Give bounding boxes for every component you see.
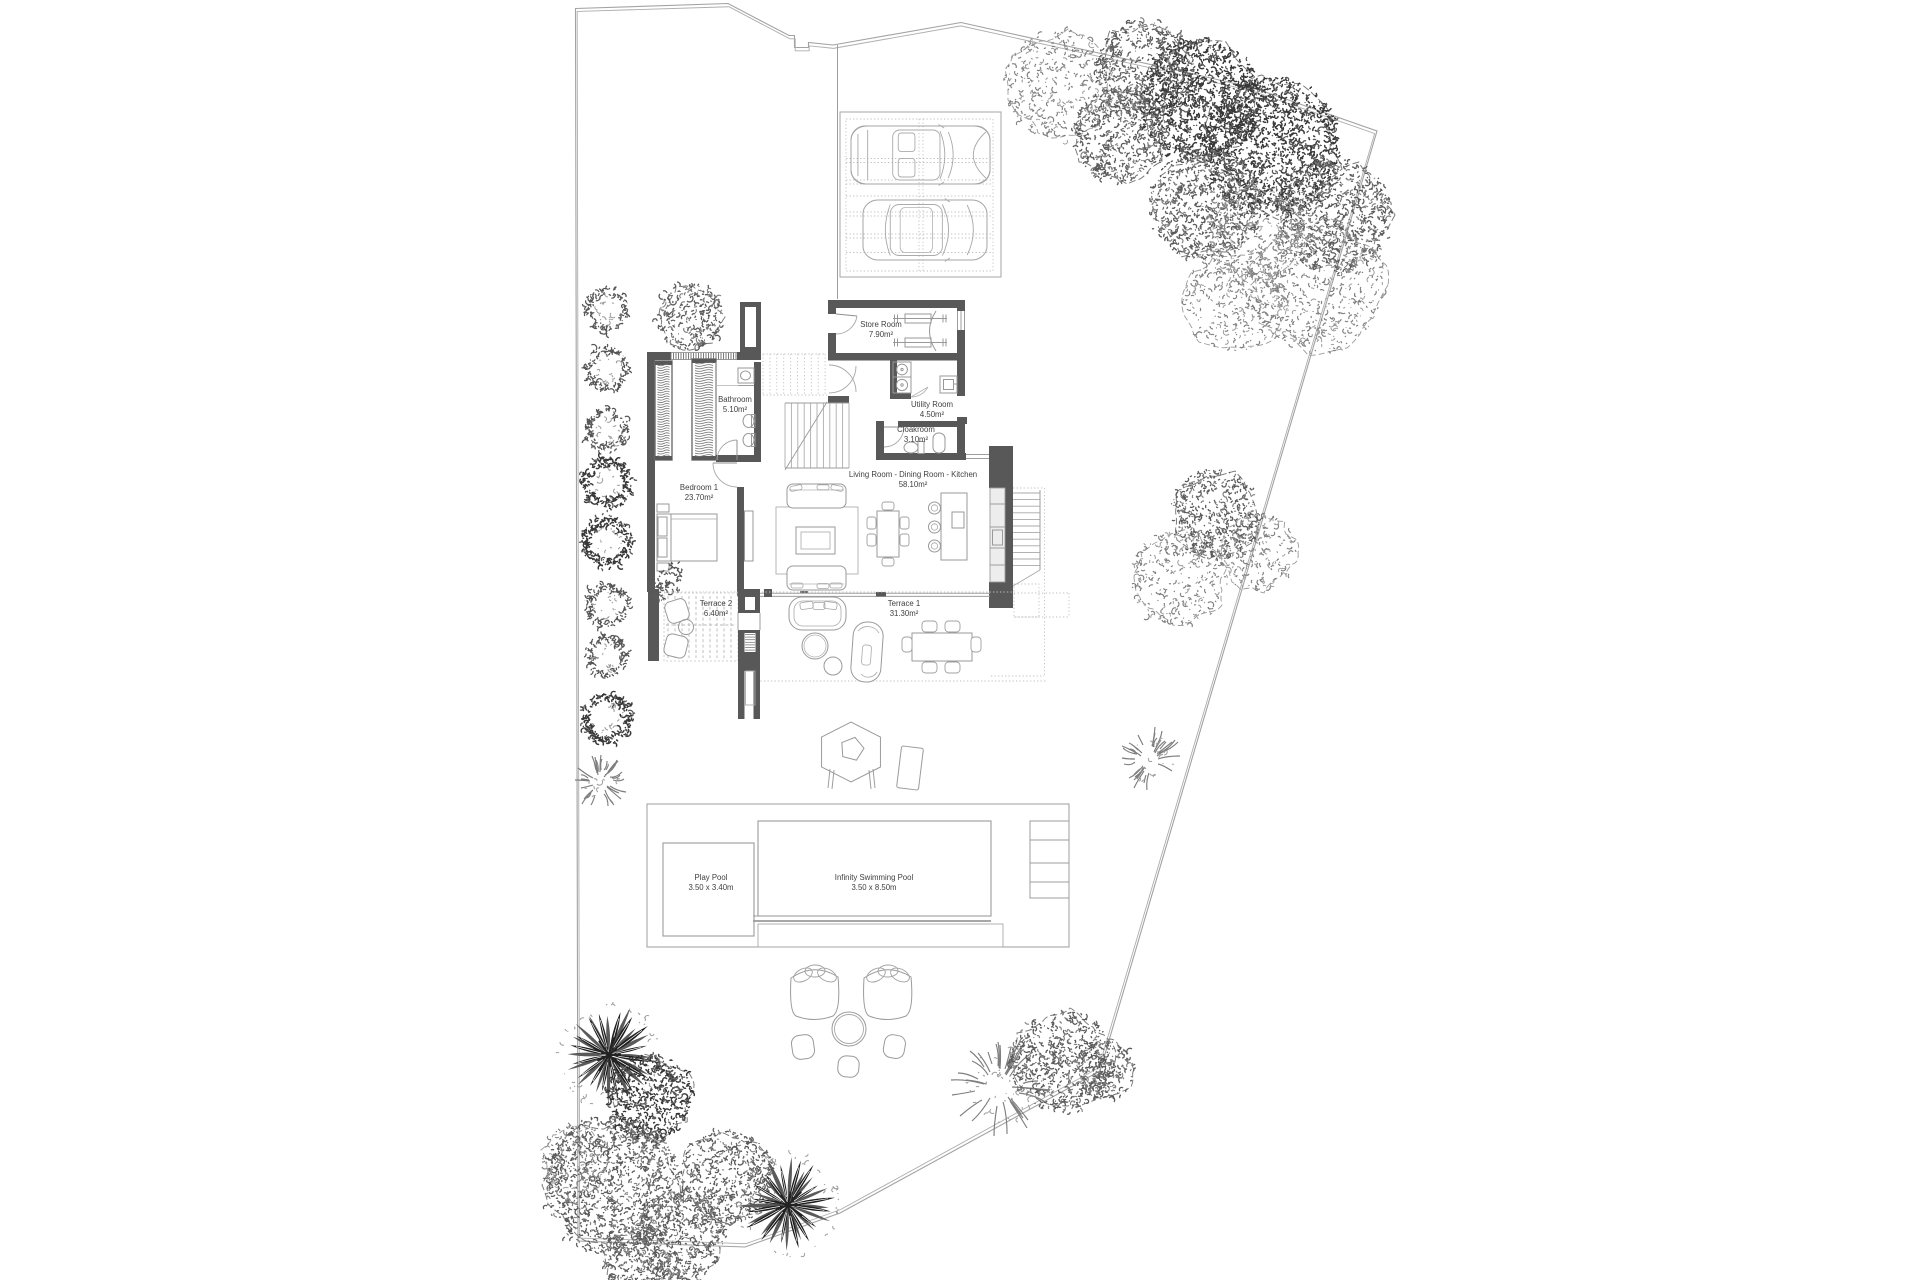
svg-text:Play Pool: Play Pool: [695, 873, 728, 882]
svg-text:Terrace 1: Terrace 1: [888, 599, 921, 608]
svg-text:Cloakroom: Cloakroom: [897, 425, 935, 434]
svg-text:6.40m²: 6.40m²: [704, 609, 729, 618]
svg-text:Bathroom: Bathroom: [718, 395, 752, 404]
svg-text:Utility Room: Utility Room: [911, 400, 953, 409]
svg-text:3.50 x 3.40m: 3.50 x 3.40m: [688, 883, 733, 892]
svg-text:Living Room - Dining Room - Ki: Living Room - Dining Room - Kitchen: [849, 470, 977, 479]
svg-text:23.70m²: 23.70m²: [685, 493, 714, 502]
svg-text:4.50m²: 4.50m²: [920, 410, 945, 419]
svg-text:Bedroom 1: Bedroom 1: [680, 483, 718, 492]
svg-text:58.10m²: 58.10m²: [899, 480, 928, 489]
svg-text:Infinity Swimming Pool: Infinity Swimming Pool: [835, 873, 914, 882]
svg-text:3.50 x 8.50m: 3.50 x 8.50m: [851, 883, 896, 892]
svg-text:Store Room: Store Room: [860, 320, 902, 329]
svg-text:31.30m²: 31.30m²: [890, 609, 919, 618]
svg-text:3.10m²: 3.10m²: [904, 435, 929, 444]
svg-text:Terrace 2: Terrace 2: [700, 599, 733, 608]
svg-text:5.10m²: 5.10m²: [723, 405, 748, 414]
svg-text:7.90m²: 7.90m²: [869, 330, 894, 339]
